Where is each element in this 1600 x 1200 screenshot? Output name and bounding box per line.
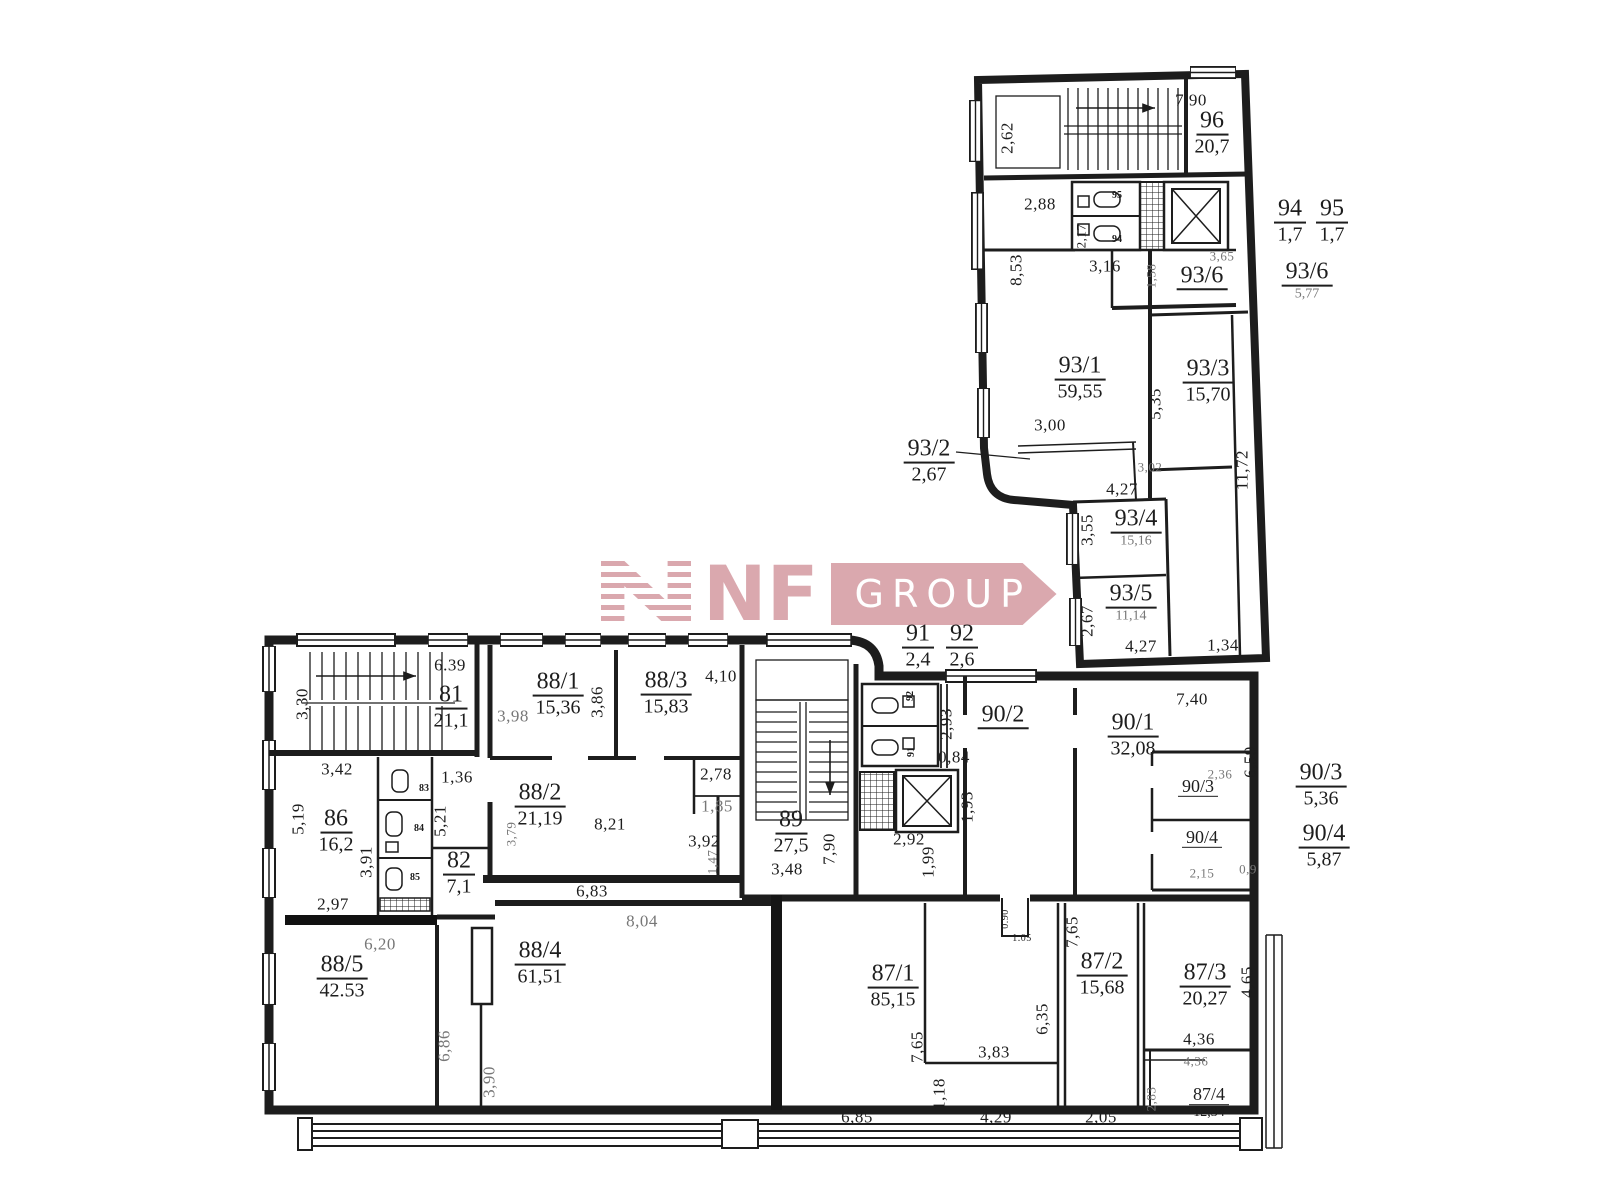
room-number: 86 [320, 807, 352, 834]
dimension-label: 0.90 [1001, 909, 1011, 929]
room-label-88/2: 88/221,19 [515, 781, 566, 830]
room-label-87/1: 87/185,15 [868, 962, 919, 1011]
dimension-label: 6,35 [1033, 1003, 1050, 1035]
room-label-90/1: 90/132,08 [1108, 711, 1159, 760]
room-label-93/4: 93/415,16 [1111, 507, 1162, 550]
dimension-label: 2,83 [1144, 1087, 1157, 1112]
room-number: 90/4 [1182, 828, 1222, 848]
dimension-label: 7,65 [1063, 916, 1080, 948]
room-number: 94 [1274, 197, 1306, 224]
room-area: 20,7 [1195, 137, 1230, 157]
room-area: 1,7 [1274, 225, 1306, 245]
room-area: 21,1 [434, 711, 469, 731]
room-label-82: 827,1 [443, 849, 475, 898]
room-area: 2,6 [946, 650, 978, 670]
room-number: 88/4 [515, 939, 566, 966]
room-label-91: 912,4 [902, 622, 934, 671]
room-number: 89 [775, 808, 807, 835]
dimension-label: 2,17 [1074, 224, 1087, 249]
dimension-label: 2,97 [317, 895, 349, 912]
room-number: 91 [902, 622, 934, 649]
room-number: 93/3 [1183, 357, 1234, 384]
dimension-label: 3,16 [1089, 257, 1121, 274]
room-label-93/3: 93/315,70 [1183, 357, 1234, 406]
fixture-number-label: 83 [419, 784, 429, 794]
room-label-96: 9620,7 [1195, 109, 1230, 158]
dimension-label: 1,47 [705, 850, 718, 875]
dimension-label: 7,40 [1176, 690, 1208, 707]
room-label-93/6: 93/65,77 [1282, 260, 1333, 303]
dimension-label: 1,18 [930, 1078, 947, 1110]
dimension-label: 8,04 [626, 912, 658, 929]
room-label-92: 922,6 [946, 622, 978, 671]
room-area: 5,77 [1282, 288, 1333, 302]
room-area: 2,67 [904, 465, 955, 485]
dimension-label: 6,83 [576, 882, 608, 899]
room-area: 85,15 [868, 990, 919, 1010]
dimension-label: 2,92 [893, 830, 925, 847]
dimension-label: 6.39 [434, 656, 466, 673]
dimension-label: 2,05 [1085, 1108, 1117, 1125]
room-number: 93/4 [1111, 507, 1162, 534]
dimension-label: 2,36 [1208, 767, 1233, 780]
room-area: 7,1 [443, 877, 475, 897]
room-area: 15,16 [1111, 535, 1162, 549]
room-area: 27,5 [774, 836, 809, 856]
dimension-label: 3,98 [497, 707, 529, 724]
dimension-label: 2,88 [1024, 195, 1056, 212]
room-number: 90/4 [1299, 822, 1350, 849]
room-label-81: 8121,1 [434, 683, 469, 732]
dimension-label: 1,36 [441, 768, 473, 785]
dimension-label: 7,65 [908, 1031, 925, 1063]
room-number: 81 [435, 683, 467, 710]
dimension-label: 4,36 [1184, 1054, 1209, 1067]
room-area: 1,7 [1316, 225, 1348, 245]
room-area: 15,83 [641, 697, 692, 717]
dimension-label: 2,67 [1078, 605, 1095, 637]
dimension-label: 3,83 [978, 1043, 1010, 1060]
room-number: 90/3 [1296, 761, 1347, 788]
room-area: 15,36 [533, 698, 584, 718]
room-area: 12,34 [1189, 1107, 1229, 1121]
dimension-label: 4,36 [1183, 1030, 1215, 1047]
room-number: 93/6 [1282, 260, 1333, 287]
room-area: 16,2 [319, 835, 354, 855]
dimension-label: 1,99 [919, 846, 936, 878]
dimension-label: 3,30 [293, 688, 310, 720]
dimension-label: 0,9 [1239, 862, 1257, 875]
room-label-93/1: 93/159,55 [1055, 354, 1106, 403]
room-label-86: 8616,2 [319, 807, 354, 856]
fixture-number-label: 84 [414, 824, 424, 834]
room-label-90/4: 90/45,87 [1299, 822, 1350, 871]
room-label-88/5: 88/542.53 [317, 953, 368, 1002]
dimension-label: 3,48 [771, 860, 803, 877]
fixture-number-label: 85 [410, 873, 420, 883]
dimension-label: 4,10 [705, 667, 737, 684]
room-number: 88/2 [515, 781, 566, 808]
room-number: 87/3 [1180, 961, 1231, 988]
dimension-label: 11,72 [1233, 450, 1250, 490]
dimension-label: 5,35 [1146, 388, 1163, 420]
dimension-label: 3,79 [504, 822, 517, 847]
dimension-label: 3,55 [1078, 514, 1095, 546]
dimension-label: 4,65 [1238, 966, 1255, 998]
dimension-label: 2,15 [1190, 866, 1215, 879]
dimension-label: 4,29 [980, 1108, 1012, 1125]
dimension-label: 2,93 [937, 708, 954, 740]
room-number: 93/1 [1055, 354, 1106, 381]
room-number: 90/2 [978, 702, 1029, 729]
room-area: 42.53 [317, 981, 368, 1001]
dimension-label: 0,84 [938, 748, 970, 765]
dimension-label: 6,86 [435, 1030, 452, 1062]
room-label-90/2: 90/2 [978, 702, 1029, 729]
plan-labels-layer: 9620,7941,7951,793/693/65,7793/159,5593/… [0, 0, 1600, 1200]
room-number: 93/6 [1177, 263, 1228, 290]
room-number: 88/3 [641, 669, 692, 696]
dimension-label: 6,59 [1241, 746, 1258, 778]
room-number: 96 [1196, 109, 1228, 136]
room-label-88/1: 88/115,36 [533, 670, 584, 719]
room-number: 93/2 [904, 437, 955, 464]
dimension-label: 1,34 [1207, 636, 1239, 653]
dimension-label: 4,27 [1125, 637, 1157, 654]
dimension-label: 8,53 [1007, 254, 1024, 286]
dimension-label: 7,90 [820, 833, 837, 865]
room-label-93/2: 93/22,67 [904, 437, 955, 486]
room-number: 87/2 [1077, 950, 1128, 977]
room-area: 15,70 [1183, 385, 1234, 405]
dimension-label: 3,00 [1034, 416, 1066, 433]
dimension-label: 4,27 [1106, 480, 1138, 497]
dimension-label: 2,62 [998, 122, 1015, 154]
room-area: 15,68 [1077, 978, 1128, 998]
room-label-90/3: 90/35,36 [1296, 761, 1347, 810]
room-label-87/3: 87/320,27 [1180, 961, 1231, 1010]
room-label-87/2: 87/215,68 [1077, 950, 1128, 999]
room-area: 2,4 [902, 650, 934, 670]
fixture-number-label: 94 [1112, 235, 1122, 245]
room-area: 59,55 [1055, 382, 1106, 402]
dimension-label: 5,19 [289, 803, 306, 835]
room-label-88/4: 88/461,51 [515, 939, 566, 988]
room-area: 32,08 [1108, 739, 1159, 759]
dimension-label: 3,90 [480, 1066, 497, 1098]
room-label-90/4: 90/4 [1182, 828, 1222, 848]
room-label-93/6: 93/6 [1177, 263, 1228, 290]
dimension-label: 5,21 [431, 805, 448, 837]
room-area: 11,14 [1106, 610, 1157, 624]
room-label-93/5: 93/511,14 [1106, 582, 1157, 625]
dimension-label: 3,02 [1138, 460, 1163, 473]
room-number: 88/5 [317, 953, 368, 980]
room-label-89: 8927,5 [774, 808, 809, 857]
dimension-label: 3,65 [1210, 249, 1235, 262]
fixture-number-label: 95 [1112, 191, 1122, 201]
fixture-number-label: 92 [906, 691, 916, 701]
room-number: 88/1 [533, 670, 584, 697]
room-label-94: 941,7 [1274, 197, 1306, 246]
room-area: 21,19 [515, 809, 566, 829]
dimension-label: 1.05 [1012, 934, 1032, 944]
dimension-label: 3,86 [588, 686, 605, 718]
room-area: 61,51 [515, 967, 566, 987]
room-area: 5,36 [1296, 789, 1347, 809]
dimension-label: 3,42 [321, 760, 353, 777]
dimension-label: 3,91 [357, 846, 374, 878]
room-number: 92 [946, 622, 978, 649]
room-number: 95 [1316, 197, 1348, 224]
dimension-label: 7,90 [1175, 91, 1207, 108]
dimension-label: 1,58 [1144, 264, 1157, 289]
floorplan-page: NF GROUP 9620,7941,7951,793/693/65,7793/… [0, 0, 1600, 1200]
dimension-label: 3,92 [688, 832, 720, 849]
dimension-label: 1,85 [701, 797, 733, 814]
room-number: 87/4 [1189, 1085, 1229, 1105]
dimension-label: 6,20 [364, 935, 396, 952]
room-area: 5,87 [1299, 850, 1350, 870]
dimension-label: 2,78 [700, 765, 732, 782]
dimension-label: 1,93 [958, 791, 975, 823]
dimension-label: 6,85 [841, 1108, 873, 1125]
room-number: 93/5 [1106, 582, 1157, 609]
room-area: 20,27 [1180, 989, 1231, 1009]
room-number: 82 [443, 849, 475, 876]
dimension-label: 8,21 [594, 815, 626, 832]
room-number: 90/1 [1108, 711, 1159, 738]
room-label-87/4: 87/412,34 [1189, 1085, 1229, 1121]
room-label-95: 951,7 [1316, 197, 1348, 246]
room-number: 87/1 [868, 962, 919, 989]
room-label-88/3: 88/315,83 [641, 669, 692, 718]
fixture-number-label: 91 [907, 747, 917, 757]
